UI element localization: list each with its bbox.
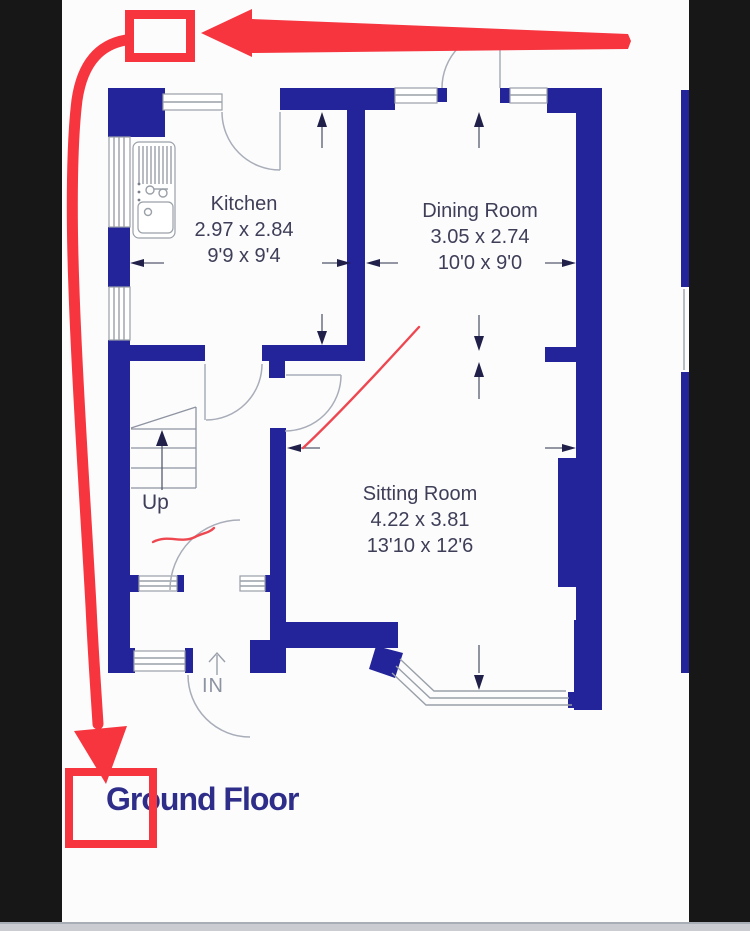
title-target-box [69,772,153,844]
left-arrow-shaft [252,19,631,53]
pen-scribble [153,528,214,542]
thin-pointer-line [303,327,419,448]
left-arrowhead [201,9,252,57]
annotation-layer [0,0,750,931]
top-target-box [130,15,191,58]
floorplan-screenshot: Kitchen 2.97 x 2.84 9'9 x 9'4 Dining Roo… [0,0,750,931]
curved-arrow-shaft [72,40,126,724]
